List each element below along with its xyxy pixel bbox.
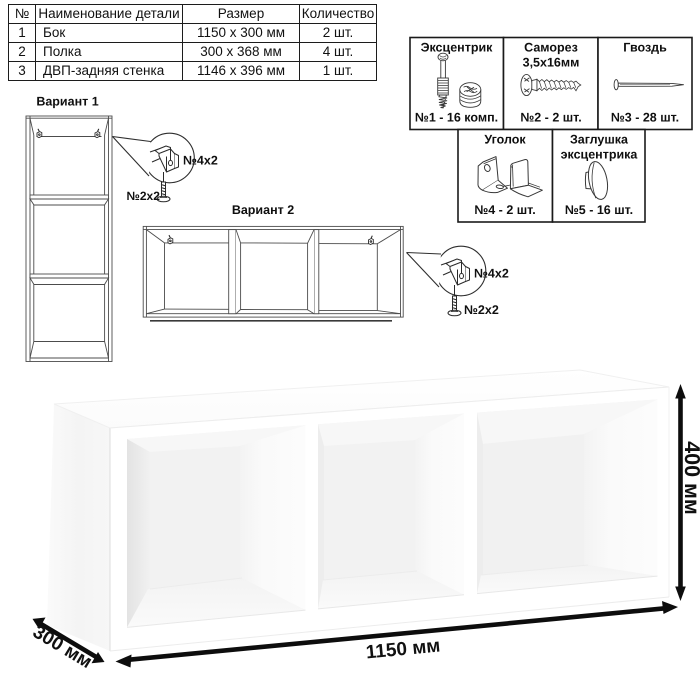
svg-text:№4х2: №4х2 — [183, 154, 218, 168]
svg-text:1150 мм: 1150 мм — [365, 635, 441, 663]
svg-text:№2х2: №2х2 — [464, 303, 499, 317]
svg-text:№2 - 2 шт.: №2 - 2 шт. — [520, 111, 581, 125]
svg-text:№3 - 28 шт.: №3 - 28 шт. — [611, 111, 679, 125]
svg-text:Саморез: Саморез — [524, 41, 578, 55]
svg-text:№4 - 2 шт.: №4 - 2 шт. — [474, 203, 535, 217]
svg-text:№2х2: №2х2 — [127, 189, 161, 203]
svg-text:Уголок: Уголок — [484, 133, 526, 147]
svg-text:№4х2: №4х2 — [474, 267, 509, 281]
svg-text:Гвоздь: Гвоздь — [623, 41, 667, 55]
svg-text:№5 - 16 шт.: №5 - 16 шт. — [565, 203, 633, 217]
svg-text:Эксцентрик: Эксцентрик — [421, 41, 494, 55]
svg-text:3,5х16мм: 3,5х16мм — [523, 56, 580, 70]
svg-text:№1 - 16 комп.: №1 - 16 комп. — [415, 111, 498, 125]
svg-text:эксцентрика: эксцентрика — [561, 148, 639, 162]
svg-text:Вариант 2: Вариант 2 — [232, 203, 294, 217]
svg-text:400 мм: 400 мм — [680, 441, 700, 515]
svg-text:Заглушка: Заглушка — [570, 133, 629, 147]
svg-text:Вариант 1: Вариант 1 — [36, 95, 98, 109]
